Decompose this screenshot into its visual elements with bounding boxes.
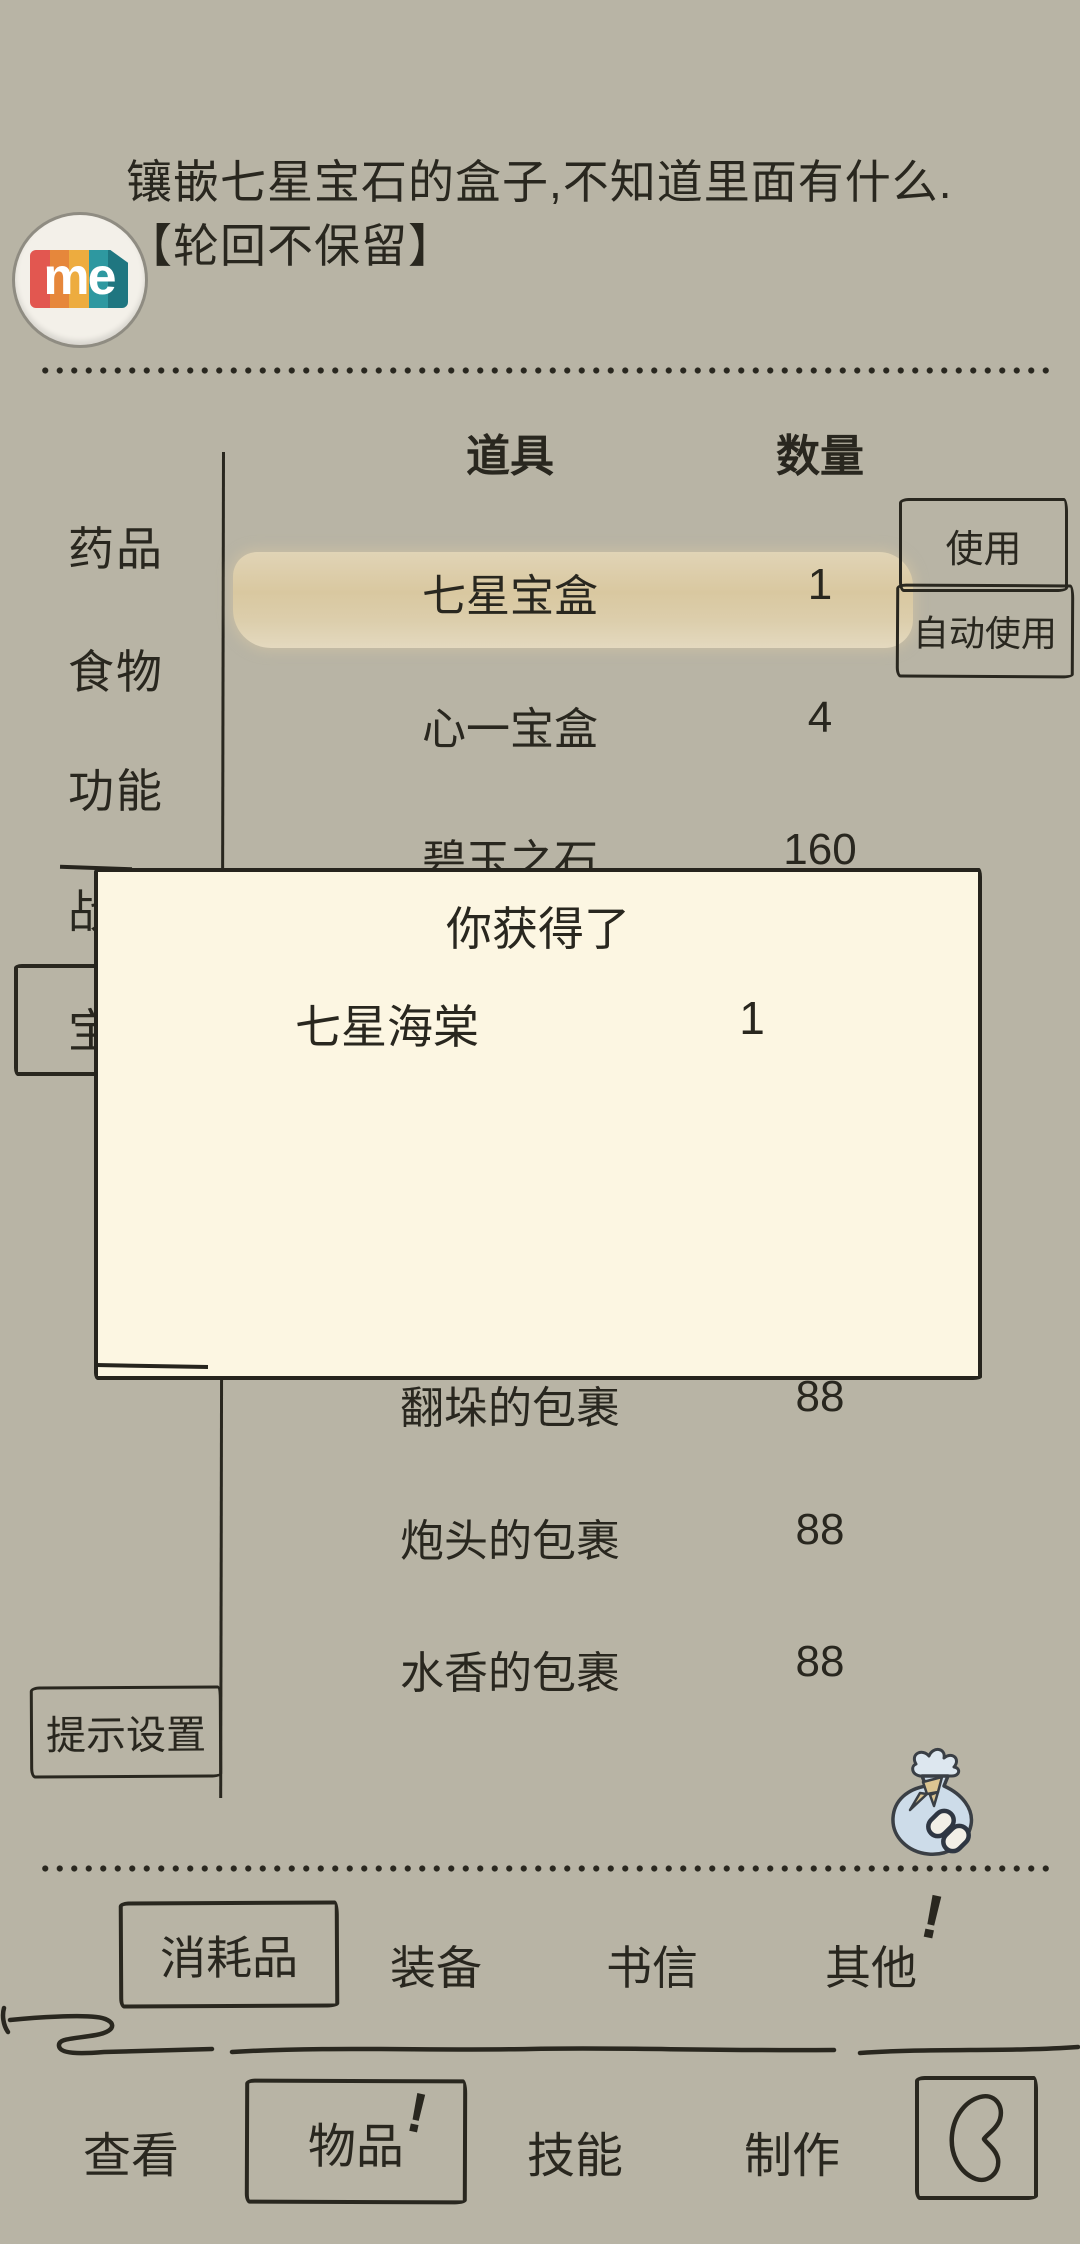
nav-item-view[interactable]: 查看 xyxy=(51,2116,211,2186)
item-name[interactable]: 翻垛的包裹 xyxy=(290,1372,730,1436)
nav-item-craft[interactable]: 制作 xyxy=(712,2116,872,2186)
auto-use-button[interactable]: 自动使用 xyxy=(896,584,1074,679)
nav-item-skills[interactable]: 技能 xyxy=(495,2116,655,2186)
item-quantity: 88 xyxy=(745,1505,895,1555)
reward-dialog-title: 你获得了 xyxy=(98,893,978,959)
item-name[interactable]: 水香的包裹 xyxy=(290,1637,730,1701)
nav-item-items-label: 物品 xyxy=(308,2106,404,2176)
reward-row: 七星海棠 1 xyxy=(98,991,978,1043)
item-quantity: 4 xyxy=(745,693,895,743)
use-button[interactable]: 使用 xyxy=(899,498,1068,592)
item-name[interactable]: 炮头的包裹 xyxy=(290,1505,730,1569)
me-logo-icon: me xyxy=(12,212,148,348)
tab-equipment[interactable]: 装备 xyxy=(351,1932,521,1998)
game-screen: 镶嵌七星宝石的盒子,不知道里面有什么. 【轮回不保留】 me 道具 数量 药品 … xyxy=(0,0,1080,2244)
dotted-divider-top xyxy=(38,366,1050,375)
reward-dialog[interactable]: 你获得了 七星海棠 1 xyxy=(94,868,982,1380)
hint-settings-button[interactable]: 提示设置 xyxy=(30,1685,222,1778)
dotted-divider-bottom xyxy=(38,1864,1050,1873)
me-logo-text: me xyxy=(30,248,128,306)
item-description: 镶嵌七星宝石的盒子,不知道里面有什么. 【轮回不保留】 xyxy=(126,150,953,278)
column-header-quantity: 数量 xyxy=(745,420,895,484)
table-row[interactable]: 翻垛的包裹 88 xyxy=(0,1372,1080,1428)
nav-item-items[interactable]: 物品 xyxy=(245,2079,467,2205)
table-row[interactable]: 心一宝盒 4 xyxy=(0,693,1080,749)
tab-consumables[interactable]: 消耗品 xyxy=(119,1900,340,2008)
item-description-line1: 镶嵌七星宝石的盒子,不知道里面有什么. xyxy=(126,150,953,214)
item-name[interactable]: 七星宝盒 xyxy=(290,560,730,624)
back-button[interactable] xyxy=(915,2076,1038,2200)
money-bag-icon[interactable] xyxy=(882,1746,986,1858)
nav-divider-squiggle xyxy=(0,2000,1080,2062)
item-quantity: 88 xyxy=(745,1637,895,1687)
column-header-item: 道具 xyxy=(290,420,730,484)
category-item-function[interactable]: 功能 xyxy=(68,755,164,821)
reward-item-name: 七星海棠 xyxy=(295,991,479,1057)
reward-item-quantity: 1 xyxy=(712,991,792,1045)
table-row[interactable]: 炮头的包裹 88 xyxy=(0,1505,1080,1561)
item-name[interactable]: 心一宝盒 xyxy=(290,693,730,757)
item-description-line2: 【轮回不保留】 xyxy=(126,214,953,278)
tab-letters[interactable]: 书信 xyxy=(567,1932,737,1998)
table-row[interactable]: 水香的包裹 88 xyxy=(0,1637,1080,1693)
back-icon xyxy=(942,2091,1012,2186)
item-quantity: 1 xyxy=(745,560,895,610)
